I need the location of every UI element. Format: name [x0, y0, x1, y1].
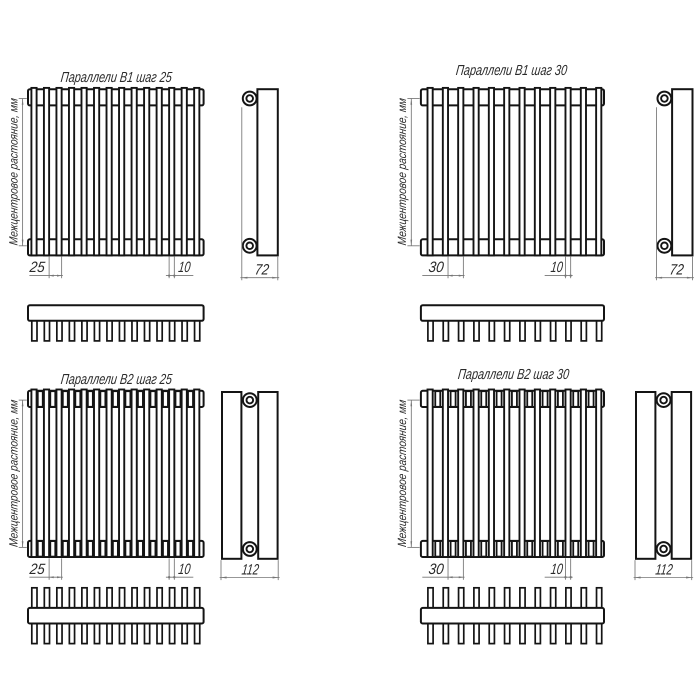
svg-text:Межцентровое растояние, мм: Межцентровое растояние, мм: [395, 398, 409, 547]
svg-text:Межцентровое растояние, мм: Межцентровое растояние, мм: [7, 398, 21, 547]
svg-text:72: 72: [669, 262, 686, 279]
svg-text:112: 112: [241, 561, 261, 578]
svg-text:Параллели В1 шаг 25: Параллели В1 шаг 25: [60, 70, 174, 86]
svg-text:Межцентровое растояние, мм: Межцентровое растояние, мм: [7, 97, 21, 246]
svg-text:25: 25: [28, 561, 47, 578]
svg-text:Параллели В2 шаг 25: Параллели В2 шаг 25: [60, 372, 174, 388]
svg-text:Межцентровое растояние, мм: Межцентровое растояние, мм: [395, 97, 409, 246]
svg-text:112: 112: [655, 561, 675, 578]
svg-text:Параллели В1 шаг 30: Параллели В1 шаг 30: [455, 63, 569, 79]
svg-text:25: 25: [28, 259, 47, 276]
svg-text:Параллели В2 шаг 30: Параллели В2 шаг 30: [457, 367, 571, 383]
svg-text:72: 72: [254, 262, 271, 279]
svg-text:30: 30: [428, 259, 446, 276]
svg-text:30: 30: [428, 561, 446, 578]
